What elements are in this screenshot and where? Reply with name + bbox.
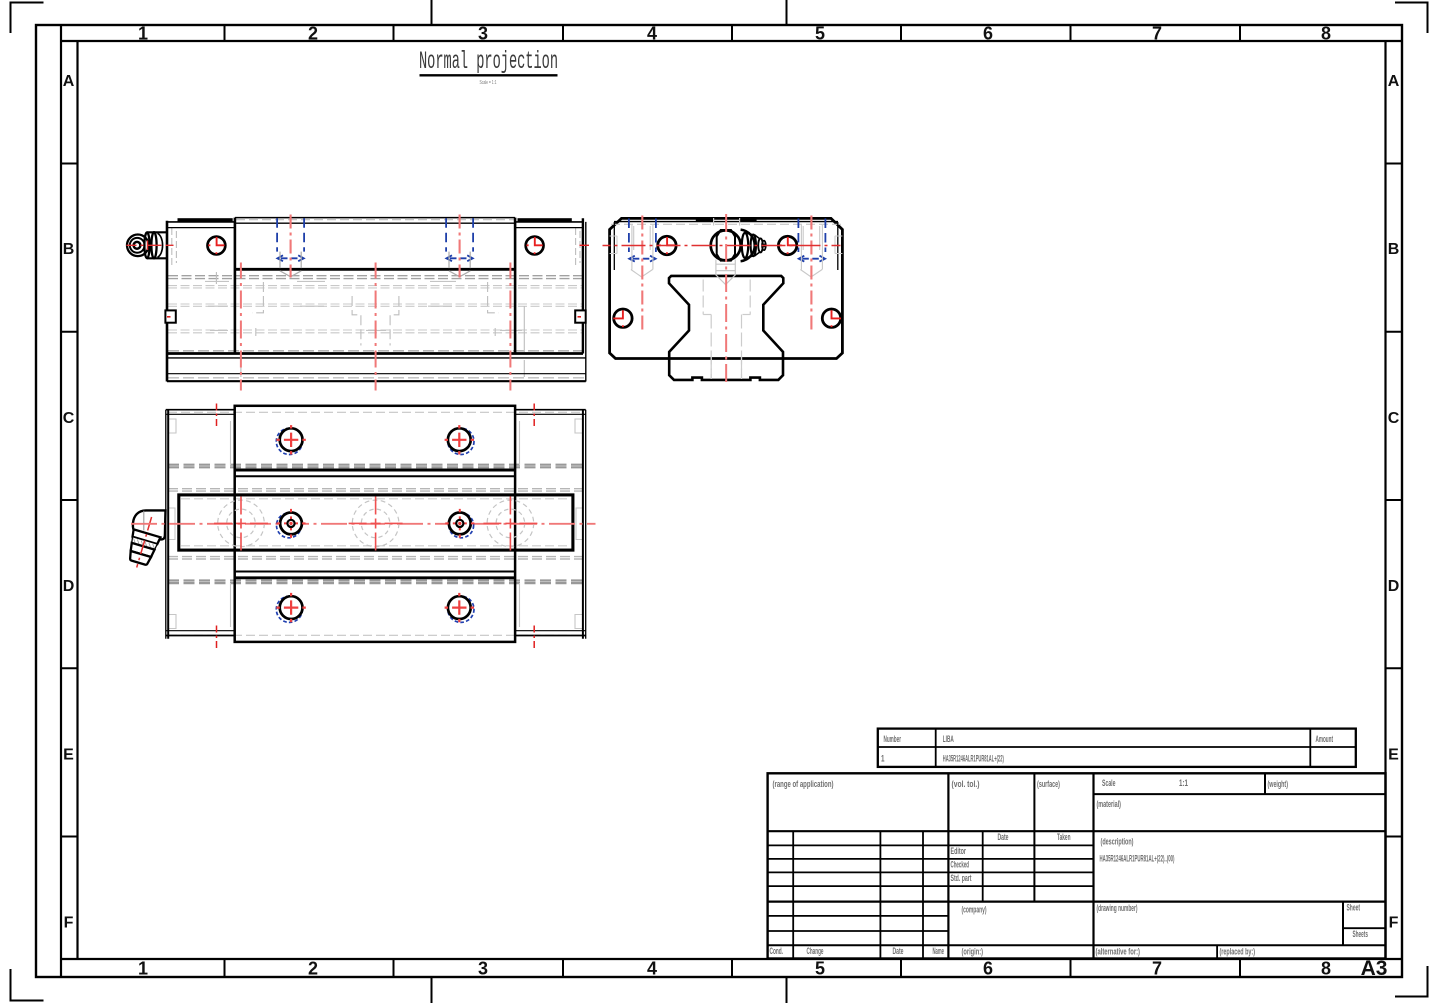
svg-text:HA35R1246ALR1PUR81AL+(22)..(00: HA35R1246ALR1PUR81AL+(22)..(00)	[1100, 854, 1175, 865]
svg-text:1: 1	[881, 754, 885, 764]
svg-text:(material): (material)	[1097, 799, 1122, 809]
svg-text:A: A	[1388, 73, 1400, 90]
svg-text:1: 1	[138, 959, 148, 979]
svg-text:B: B	[63, 241, 75, 258]
svg-text:(origin:): (origin:)	[962, 947, 984, 957]
svg-text:F: F	[1389, 915, 1399, 932]
svg-text:A: A	[63, 73, 75, 90]
svg-text:(vol. tol.): (vol. tol.)	[952, 779, 980, 789]
svg-text:3: 3	[478, 959, 488, 979]
svg-text:E: E	[63, 747, 74, 764]
svg-text:(company): (company)	[962, 905, 987, 915]
svg-text:F: F	[64, 915, 74, 932]
svg-text:Sheets: Sheets	[1353, 929, 1369, 939]
svg-text:7: 7	[1152, 24, 1162, 44]
svg-text:2: 2	[308, 24, 318, 44]
svg-text:Editor: Editor	[951, 846, 967, 856]
svg-text:C: C	[1388, 410, 1400, 427]
svg-text:Sheet: Sheet	[1347, 903, 1361, 913]
svg-text:8: 8	[1321, 959, 1331, 979]
svg-text:4: 4	[647, 959, 657, 979]
svg-text:Std. part: Std. part	[951, 873, 972, 883]
svg-text:3: 3	[478, 24, 488, 44]
svg-text:Date: Date	[998, 832, 1009, 842]
svg-text:6: 6	[983, 959, 993, 979]
svg-text:1:1: 1:1	[1179, 778, 1188, 788]
svg-text:(description): (description)	[1101, 837, 1134, 847]
svg-text:(alternative for:): (alternative for:)	[1096, 947, 1141, 957]
svg-text:4: 4	[647, 24, 657, 44]
svg-text:(replaced by:): (replaced by:)	[1220, 947, 1256, 957]
svg-text:Amount: Amount	[1316, 734, 1334, 744]
svg-text:(surface): (surface)	[1037, 779, 1060, 789]
svg-text:6: 6	[983, 24, 993, 44]
svg-text:Number: Number	[884, 734, 902, 744]
svg-text:5: 5	[815, 24, 825, 44]
svg-text:Normal projection: Normal projection	[419, 47, 558, 76]
svg-text:D: D	[63, 578, 75, 595]
svg-text:E: E	[1388, 747, 1399, 764]
svg-text:1: 1	[138, 24, 148, 44]
svg-text:Checked: Checked	[951, 860, 970, 870]
svg-text:5: 5	[815, 959, 825, 979]
svg-text:8: 8	[1321, 24, 1331, 44]
svg-text:(drawing number): (drawing number)	[1097, 903, 1138, 913]
svg-text:2: 2	[308, 959, 318, 979]
svg-text:LIBA: LIBA	[943, 734, 954, 744]
svg-text:Taken: Taken	[1057, 832, 1071, 842]
svg-text:Scale: Scale	[1102, 778, 1116, 788]
svg-text:A3: A3	[1361, 957, 1388, 980]
svg-text:Cond.: Cond.	[770, 946, 784, 956]
svg-text:Name: Name	[933, 946, 945, 956]
svg-text:7: 7	[1152, 959, 1162, 979]
svg-text:Scale = 1:1: Scale = 1:1	[480, 80, 497, 86]
svg-text:HA35R1246ALR1PUR81AL+(22): HA35R1246ALR1PUR81AL+(22)	[943, 754, 1004, 765]
svg-text:Date: Date	[893, 946, 904, 956]
svg-text:(weight): (weight)	[1268, 779, 1289, 789]
svg-text:(range of application): (range of application)	[773, 779, 834, 789]
svg-text:D: D	[1388, 578, 1400, 595]
svg-text:Change: Change	[807, 946, 824, 956]
svg-text:C: C	[63, 410, 75, 427]
svg-text:B: B	[1388, 241, 1400, 258]
